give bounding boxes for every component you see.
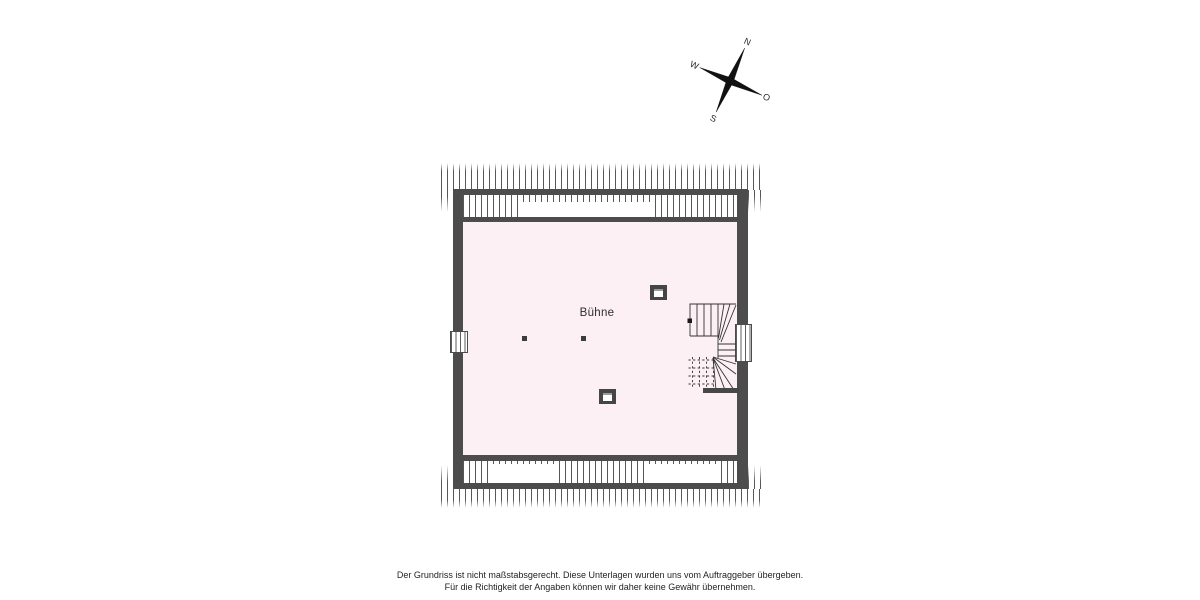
- compass-rose-icon: N S W O: [685, 30, 777, 132]
- stair-start-marker: [688, 319, 693, 324]
- support-post-left: [522, 336, 527, 341]
- chimney-lower: [599, 389, 616, 404]
- compass-label-south: S: [709, 113, 719, 125]
- roof-hatch-left-top: [441, 190, 453, 212]
- chimney-upper-flue: [654, 289, 663, 297]
- compass-label-east: O: [761, 91, 771, 103]
- chimney-upper: [650, 285, 667, 300]
- floor-plan-canvas: N S W O: [0, 0, 1200, 600]
- roof-hatch-left-bottom: [441, 465, 453, 489]
- roof-hatch-right-bottom: [748, 465, 764, 489]
- room-label: Bühne: [567, 307, 627, 319]
- window-left: [450, 331, 468, 353]
- chimney-lower-flue: [603, 393, 612, 401]
- disclaimer-line-1: Der Grundriss ist nicht maßstabsgerecht.…: [0, 570, 1200, 582]
- dormer-gap-bottom-right: [648, 464, 721, 483]
- wall-top-outer: [453, 189, 748, 195]
- compass-label-north: N: [742, 36, 752, 48]
- support-post-right: [581, 336, 586, 341]
- staircase: [686, 302, 740, 396]
- roof-hatch-right-top: [748, 190, 764, 212]
- roof-hatch-top-eave: [441, 163, 764, 190]
- wall-top-inner: [453, 217, 748, 222]
- compass-needle-we: [698, 64, 763, 98]
- roof-hatch-bottom-eave: [441, 489, 764, 508]
- compass-label-west: W: [688, 59, 700, 72]
- disclaimer: Der Grundriss ist nicht maßstabsgerecht.…: [0, 570, 1200, 593]
- disclaimer-line-2: Für die Richtigkeit der Angaben können w…: [0, 582, 1200, 594]
- dormer-gap-bottom-left: [488, 464, 555, 483]
- stair-landing-wall: [703, 388, 739, 393]
